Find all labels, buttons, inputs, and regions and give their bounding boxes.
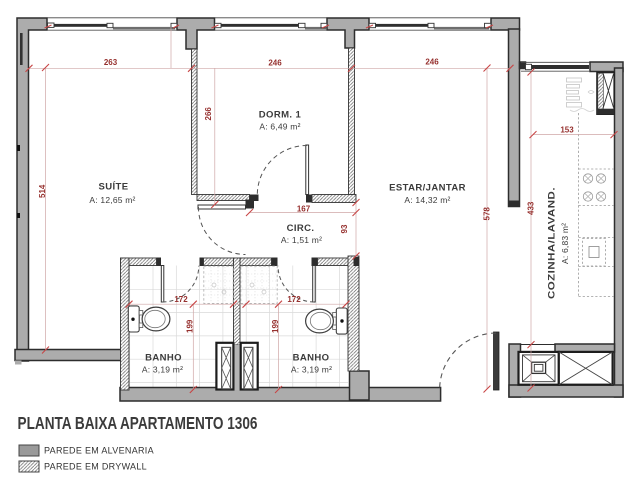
svg-text:263: 263 <box>104 58 118 67</box>
svg-text:A: 14,32 m²: A: 14,32 m² <box>404 195 450 205</box>
svg-text:172: 172 <box>287 295 301 304</box>
svg-text:DORM. 1: DORM. 1 <box>259 110 302 121</box>
svg-text:172: 172 <box>174 295 188 304</box>
svg-text:93: 93 <box>340 224 349 233</box>
svg-text:BANHO: BANHO <box>145 353 182 364</box>
svg-text:BANHO: BANHO <box>293 353 330 364</box>
svg-text:A: 6,49 m²: A: 6,49 m² <box>259 122 300 132</box>
svg-text:514: 514 <box>38 184 47 198</box>
svg-text:266: 266 <box>204 107 213 121</box>
svg-text:CIRC.: CIRC. <box>287 223 315 234</box>
svg-text:PAREDE EM DRYWALL: PAREDE EM DRYWALL <box>44 462 147 472</box>
svg-text:A: 1,51 m²: A: 1,51 m² <box>281 235 322 245</box>
svg-text:199: 199 <box>271 319 280 333</box>
svg-text:246: 246 <box>425 58 439 67</box>
svg-text:167: 167 <box>297 205 311 214</box>
svg-text:A: 3,19 m²: A: 3,19 m² <box>291 365 332 375</box>
svg-text:A: 6,83 m²: A: 6,83 m² <box>560 223 570 264</box>
svg-text:246: 246 <box>268 59 282 68</box>
svg-text:153: 153 <box>560 126 574 135</box>
svg-text:PLANTA BAIXA APARTAMENTO 1306: PLANTA BAIXA APARTAMENTO 1306 <box>18 413 258 433</box>
svg-text:PAREDE EM ALVENARIA: PAREDE EM ALVENARIA <box>44 446 154 456</box>
svg-text:433: 433 <box>526 201 535 215</box>
svg-text:SUÍTE: SUÍTE <box>99 182 129 193</box>
svg-text:A: 12,65 m²: A: 12,65 m² <box>89 195 135 205</box>
svg-text:578: 578 <box>483 207 492 221</box>
svg-text:199: 199 <box>186 319 195 333</box>
svg-text:ESTAR/JANTAR: ESTAR/JANTAR <box>389 183 466 194</box>
svg-text:COZINHA/LAVAND.: COZINHA/LAVAND. <box>547 187 558 299</box>
svg-text:A: 3,19 m²: A: 3,19 m² <box>142 365 183 375</box>
